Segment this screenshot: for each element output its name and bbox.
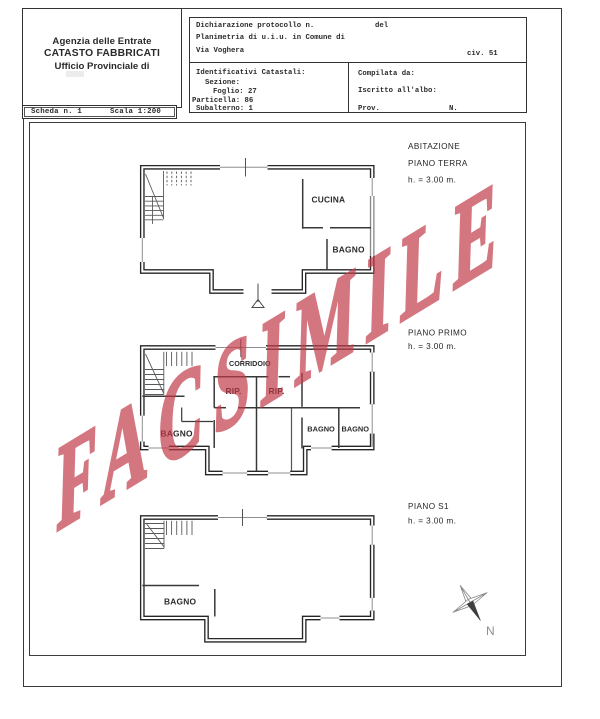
svg-text:FACSIMILE: FACSIMILE (55, 149, 508, 559)
